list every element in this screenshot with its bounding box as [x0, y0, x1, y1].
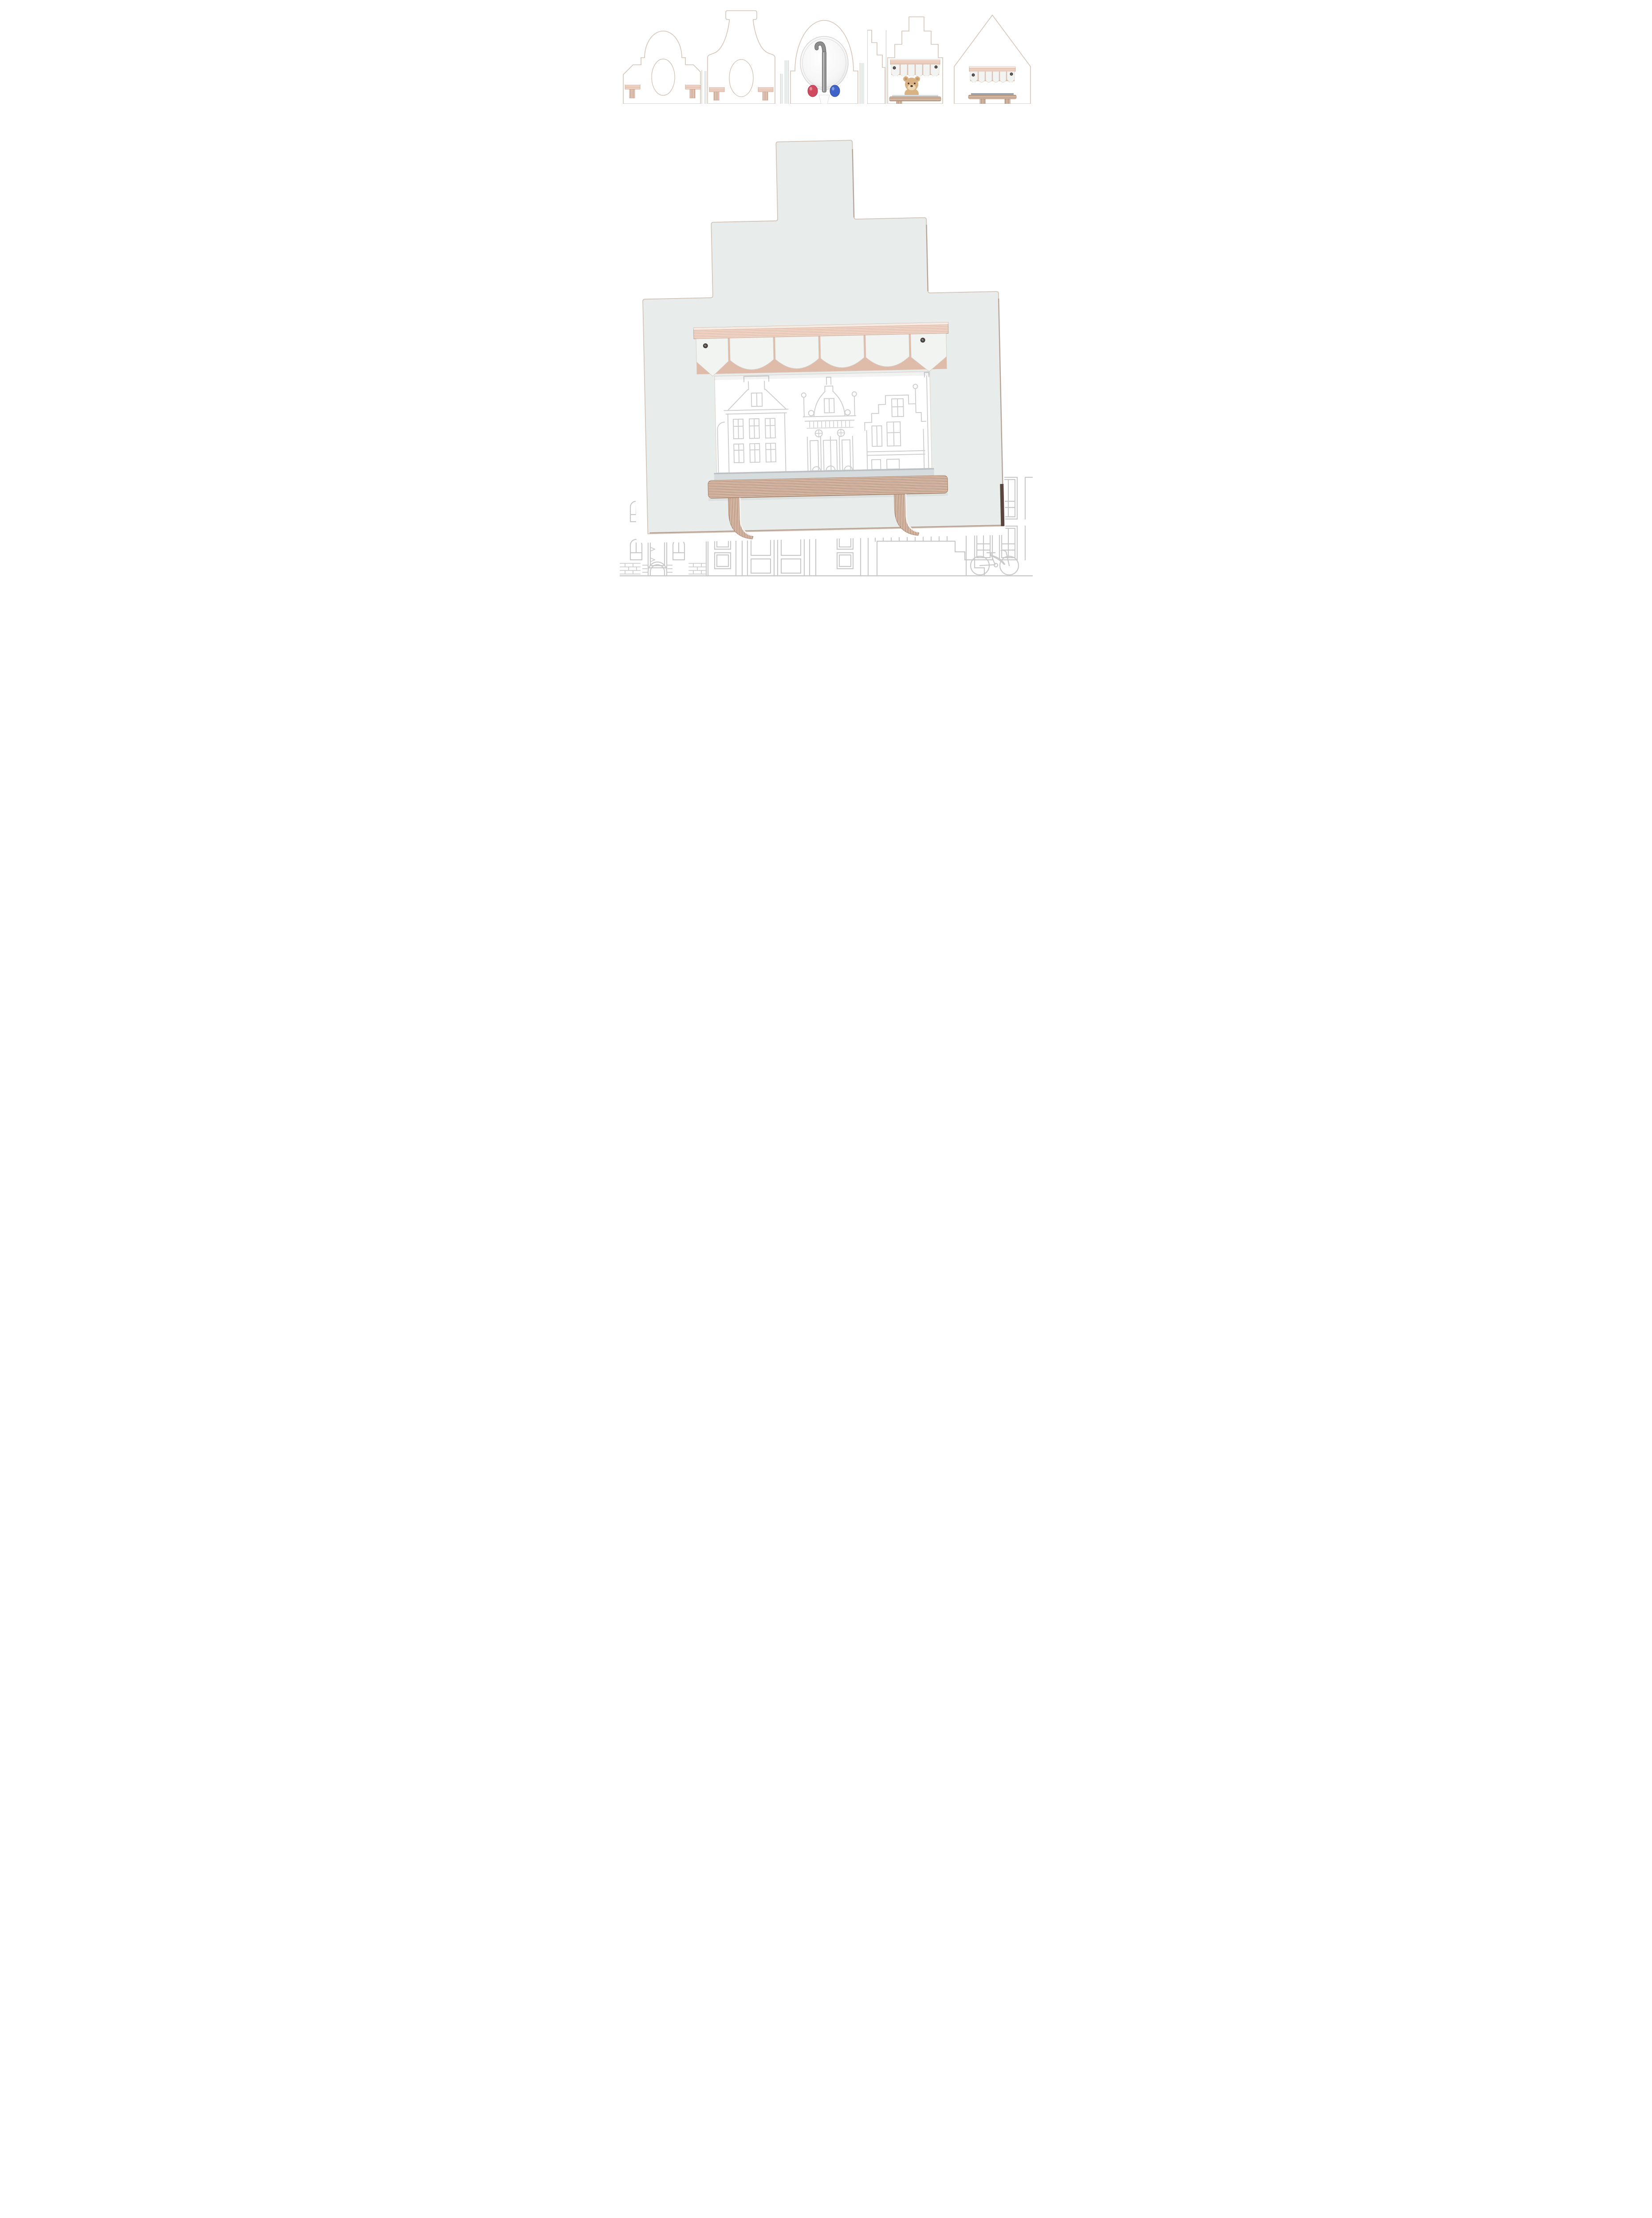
gallery-thumb-neck-gable[interactable]: [704, 4, 783, 104]
peg-shelf-left: [709, 87, 724, 100]
peg-shelf-right: [685, 84, 700, 98]
product-gallery: [620, 0, 1033, 106]
gallery-thumb-pitched-roof[interactable]: [953, 4, 1031, 104]
side-panel-left: [867, 30, 885, 104]
oval-cutout: [652, 59, 675, 95]
window-opening: [972, 83, 1013, 93]
peg-shelf-left: [625, 84, 640, 98]
screw-left-center: [893, 67, 895, 69]
side-panel-right: [861, 63, 864, 104]
shelf-bracket-right: [1005, 99, 1010, 104]
gallery-thumb-mirror-hook[interactable]: [784, 4, 864, 104]
main-photo-image: [628, 134, 1006, 543]
screw-right-center: [1011, 74, 1012, 75]
bicycle-icon: [971, 550, 1019, 575]
side-panel-left: [784, 60, 788, 104]
knob-blue: [830, 85, 840, 97]
side-panel-right: [781, 74, 783, 104]
shelf-top: [971, 93, 1014, 95]
thumb2-image: [704, 4, 783, 104]
window-opening: [714, 371, 932, 473]
shelf-bracket-left: [980, 99, 985, 104]
hook-base: [819, 95, 830, 104]
stoop: [877, 541, 955, 576]
awning: [969, 67, 1015, 84]
thumb5-image: [953, 4, 1031, 104]
shelf-top: [892, 95, 938, 97]
thumb1-image: [621, 4, 702, 104]
screw-right-center: [935, 67, 936, 68]
screw-left-center: [972, 75, 974, 76]
awning: [693, 322, 949, 377]
gallery-thumb-bell-gable[interactable]: [621, 4, 702, 104]
shelf-front: [968, 95, 1016, 99]
main-product-photo[interactable]: [628, 134, 1006, 543]
peg-shelf-right: [758, 87, 773, 100]
page: [620, 0, 1033, 578]
oval-cutout: [729, 59, 753, 97]
thumb4-image: [867, 4, 944, 104]
side-panel-left: [704, 71, 705, 104]
shelf-front: [889, 97, 941, 101]
gallery-thumb-stepped-gable-teddy[interactable]: [867, 4, 944, 104]
knob-red-highlight: [810, 87, 812, 90]
thumb3-image: [784, 4, 864, 104]
knob-blue-highlight: [832, 87, 834, 90]
knob-red: [808, 85, 818, 97]
shelf-bracket: [897, 101, 902, 104]
awning: [890, 59, 940, 78]
